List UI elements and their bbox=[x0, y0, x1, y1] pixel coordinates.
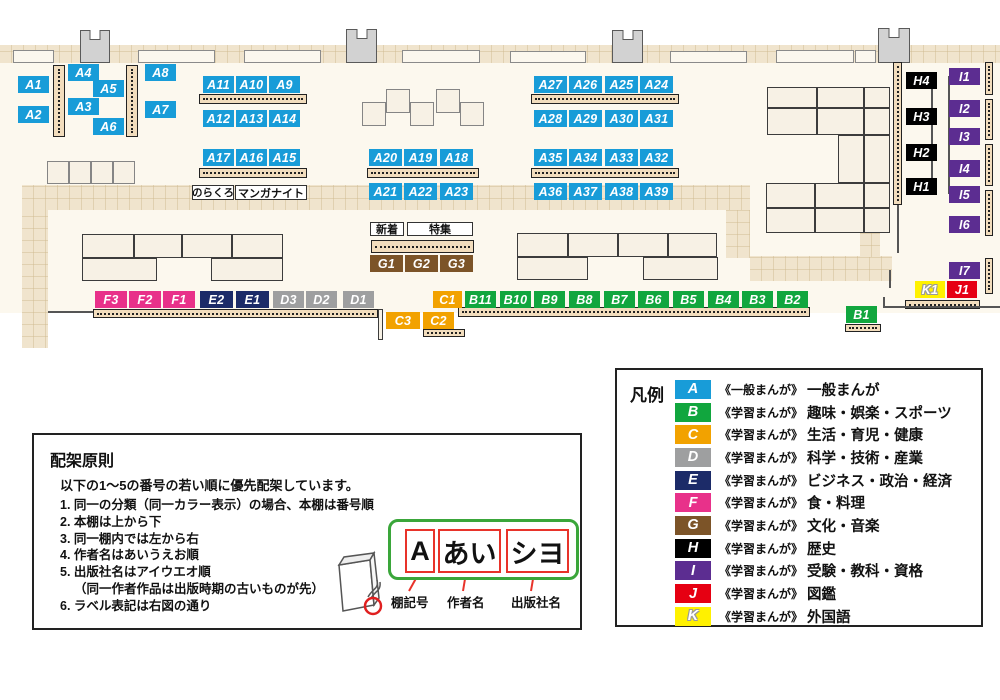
shelf-label-A32: A32 bbox=[640, 149, 673, 166]
shelf-label-A17: A17 bbox=[203, 149, 234, 166]
shelf-label-A7: A7 bbox=[145, 101, 176, 118]
shelf-label-I3: I3 bbox=[949, 128, 980, 145]
reading-table bbox=[211, 258, 283, 281]
legend-chip-I: I bbox=[675, 561, 711, 580]
shelf-label-H1: H1 bbox=[906, 178, 937, 195]
legend-row-A: A《一般まんが》一般まんが bbox=[675, 378, 952, 401]
walkway-area bbox=[860, 230, 880, 257]
bookshelf bbox=[371, 240, 474, 253]
legend-series: 《学習まんが》 bbox=[719, 426, 807, 443]
principles-item: （同一作者作品は出版時期の古いものが先） bbox=[60, 581, 374, 598]
bookshelf bbox=[985, 99, 993, 140]
legend-category: 図鑑 bbox=[807, 583, 836, 604]
wall-line bbox=[889, 270, 891, 288]
legend-row-K: K《学習まんが》外国語 bbox=[675, 605, 952, 628]
reading-table bbox=[232, 234, 283, 258]
shelf-label-K1: K1 bbox=[915, 281, 945, 298]
shelf-label-A22: A22 bbox=[404, 183, 437, 200]
pillar bbox=[878, 28, 910, 63]
legend-category: 歴史 bbox=[807, 538, 836, 559]
legend-category: 受験・教科・資格 bbox=[807, 560, 923, 581]
legend-chip-G: G bbox=[675, 516, 711, 535]
shelf-label-A25: A25 bbox=[605, 76, 638, 93]
bookshelf bbox=[423, 329, 465, 337]
shelf-label-B6: B6 bbox=[638, 291, 669, 308]
legend-chip-B: B bbox=[675, 403, 711, 422]
reading-table bbox=[134, 234, 182, 258]
legend-chip-K: K bbox=[675, 607, 711, 626]
shelf-label-A11: A11 bbox=[203, 76, 234, 93]
reading-table bbox=[766, 183, 815, 208]
walkway-area bbox=[22, 208, 48, 348]
legend-category: 食・料理 bbox=[807, 492, 865, 513]
principles-item: 5. 出版社名はアイウエオ順 bbox=[60, 564, 374, 581]
principles-intro: 以下の1～5の番号の若い順に優先配架しています。 bbox=[60, 475, 359, 494]
shelf-label-B1: B1 bbox=[846, 306, 877, 323]
floor-block bbox=[91, 161, 113, 184]
walkway-area bbox=[750, 256, 892, 281]
map-tag: 新着 bbox=[370, 222, 404, 236]
label-author: あい bbox=[443, 532, 497, 571]
legend-row-G: G《学習まんが》文化・音楽 bbox=[675, 514, 952, 537]
reading-table bbox=[864, 135, 890, 183]
author-caption: 作者名 bbox=[447, 592, 485, 611]
principles-item: 2. 本棚は上から下 bbox=[60, 514, 374, 531]
wall-window bbox=[855, 50, 876, 63]
reading-table bbox=[815, 183, 864, 208]
shelf-label-A38: A38 bbox=[605, 183, 638, 200]
bookshelf bbox=[893, 62, 902, 205]
shelf-label-A2: A2 bbox=[18, 106, 49, 123]
shelf-label-D1: D1 bbox=[343, 291, 374, 308]
pillar bbox=[80, 30, 110, 63]
map-tag: 特集 bbox=[407, 222, 473, 236]
legend-panel: 凡例 A《一般まんが》一般まんがB《学習まんが》趣味・娯楽・スポーツC《学習まん… bbox=[615, 368, 983, 627]
legend-row-C: C《学習まんが》生活・育児・健康 bbox=[675, 423, 952, 446]
shelf-label-A14: A14 bbox=[269, 110, 300, 127]
wall-window bbox=[244, 50, 321, 63]
wall-line bbox=[48, 311, 93, 313]
reading-table bbox=[817, 87, 864, 108]
shelf-label-H3: H3 bbox=[906, 108, 937, 125]
legend-series: 《学習まんが》 bbox=[719, 404, 807, 421]
shelf-label-F2: F2 bbox=[129, 291, 161, 308]
shelf-label-A29: A29 bbox=[569, 110, 602, 127]
legend-row-I: I《学習まんが》受験・教科・資格 bbox=[675, 560, 952, 583]
bookshelf bbox=[985, 62, 993, 95]
shelf-label-B7: B7 bbox=[604, 291, 635, 308]
legend-chip-H: H bbox=[675, 539, 711, 558]
principles-item: 6. ラベル表記は右図の通り bbox=[60, 598, 374, 615]
shelf-label-B8: B8 bbox=[569, 291, 600, 308]
legend-category: 科学・技術・産業 bbox=[807, 447, 923, 468]
wall-window bbox=[776, 50, 854, 63]
principles-title: 配架原則 bbox=[50, 447, 114, 471]
legend-series: 《学習まんが》 bbox=[719, 608, 807, 625]
shelf-label-A26: A26 bbox=[569, 76, 602, 93]
label-publisher-box: シヨ bbox=[506, 529, 569, 573]
shelving-principles-panel: 配架原則 以下の1～5の番号の若い順に優先配架しています。 1. 同一の分類（同… bbox=[32, 433, 582, 630]
floor-block bbox=[410, 102, 434, 126]
shelf-label-I2: I2 bbox=[949, 100, 980, 117]
label-shelf-code-box: A bbox=[405, 529, 435, 573]
legend-row-J: J《学習まんが》図鑑 bbox=[675, 582, 952, 605]
shelf-label-A12: A12 bbox=[203, 110, 234, 127]
bookshelf bbox=[985, 144, 993, 186]
reading-table bbox=[182, 234, 232, 258]
shelf-label-F3: F3 bbox=[95, 291, 127, 308]
shelf-label-B4: B4 bbox=[708, 291, 739, 308]
legend-series: 《一般まんが》 bbox=[719, 381, 807, 398]
map-tag: のらくろ bbox=[192, 185, 234, 200]
shelf-label-G1: G1 bbox=[370, 255, 403, 272]
reading-table bbox=[766, 208, 815, 233]
shelf-label-B3: B3 bbox=[742, 291, 773, 308]
reading-table bbox=[517, 257, 588, 280]
reading-table bbox=[815, 208, 864, 233]
shelf-label-A31: A31 bbox=[640, 110, 673, 127]
bookshelf bbox=[199, 94, 307, 104]
shelf-label-E2: E2 bbox=[200, 291, 233, 308]
shelf-label-E1: E1 bbox=[236, 291, 269, 308]
legend-series: 《学習まんが》 bbox=[719, 585, 807, 602]
label-author-box: あい bbox=[438, 529, 501, 573]
legend-category: 生活・育児・健康 bbox=[807, 424, 923, 445]
reading-table bbox=[568, 233, 618, 257]
shelf-label-A3: A3 bbox=[68, 98, 99, 115]
reading-table bbox=[817, 108, 864, 135]
legend-row-D: D《学習まんが》科学・技術・産業 bbox=[675, 446, 952, 469]
floor-block bbox=[362, 102, 386, 126]
shelf-label-A39: A39 bbox=[640, 183, 673, 200]
shelf-label-B2: B2 bbox=[777, 291, 808, 308]
wall-line bbox=[931, 80, 933, 186]
legend-chip-F: F bbox=[675, 493, 711, 512]
legend-category: 一般まんが bbox=[807, 379, 880, 400]
map-tag: マンガナイト bbox=[235, 185, 307, 200]
bookshelf bbox=[199, 168, 307, 178]
reading-table bbox=[82, 258, 157, 281]
shelf-label-A30: A30 bbox=[605, 110, 638, 127]
shelf-label-A23: A23 bbox=[440, 183, 473, 200]
principles-list: 1. 同一の分類（同一カラー表示）の場合、本棚は番号順2. 本棚は上から下3. … bbox=[60, 497, 374, 615]
bookshelf bbox=[531, 94, 679, 104]
reading-table bbox=[82, 234, 134, 258]
reading-table bbox=[864, 87, 890, 108]
legend-title: 凡例 bbox=[630, 381, 664, 406]
shelf-label-A15: A15 bbox=[269, 149, 300, 166]
floor-block bbox=[436, 89, 460, 113]
legend-chip-A: A bbox=[675, 380, 711, 399]
wall-line bbox=[897, 306, 1000, 308]
legend-row-B: B《学習まんが》趣味・娯楽・スポーツ bbox=[675, 401, 952, 424]
floor-block bbox=[386, 89, 410, 113]
shelf-label-D3: D3 bbox=[273, 291, 304, 308]
legend-category: 外国語 bbox=[807, 606, 851, 627]
legend-rows: A《一般まんが》一般まんがB《学習まんが》趣味・娯楽・スポーツC《学習まんが》生… bbox=[675, 378, 952, 628]
wall-line bbox=[897, 205, 899, 253]
shelf-label-A8: A8 bbox=[145, 64, 176, 81]
reading-table bbox=[618, 233, 668, 257]
reading-table bbox=[838, 135, 864, 183]
principles-item: 3. 同一棚内では左から右 bbox=[60, 531, 374, 548]
shelf-label-A4: A4 bbox=[68, 64, 99, 81]
bookshelf bbox=[985, 190, 993, 236]
legend-row-E: E《学習まんが》ビジネス・政治・経済 bbox=[675, 469, 952, 492]
shelf-label-H2: H2 bbox=[906, 144, 937, 161]
wall-line bbox=[883, 306, 897, 308]
shelf-label-J1: J1 bbox=[947, 281, 977, 298]
reading-table bbox=[767, 108, 817, 135]
shelf-label-I6: I6 bbox=[949, 216, 980, 233]
legend-series: 《学習まんが》 bbox=[719, 517, 807, 534]
shelf-label-A18: A18 bbox=[440, 149, 473, 166]
shelf-label-A1: A1 bbox=[18, 76, 49, 93]
shelf-label-A10: A10 bbox=[236, 76, 267, 93]
reading-table bbox=[668, 233, 717, 257]
label-publisher: シヨ bbox=[511, 532, 565, 571]
shelf-label-I4: I4 bbox=[949, 160, 980, 177]
shelf-label-A20: A20 bbox=[369, 149, 402, 166]
shelf-label-A36: A36 bbox=[534, 183, 567, 200]
shelf-label-A33: A33 bbox=[605, 149, 638, 166]
label-sticker-diagram: A あい シヨ bbox=[388, 519, 579, 580]
reading-table bbox=[767, 87, 817, 108]
shelf-label-I5: I5 bbox=[949, 186, 980, 203]
principles-item: 1. 同一の分類（同一カラー表示）の場合、本棚は番号順 bbox=[60, 497, 374, 514]
shelf-code-caption: 棚記号 bbox=[391, 592, 429, 611]
publisher-caption: 出版社名 bbox=[511, 592, 561, 611]
shelf-label-F1: F1 bbox=[163, 291, 195, 308]
shelf-label-A21: A21 bbox=[369, 183, 402, 200]
shelf-label-A27: A27 bbox=[534, 76, 567, 93]
legend-chip-J: J bbox=[675, 584, 711, 603]
legend-chip-C: C bbox=[675, 425, 711, 444]
legend-category: ビジネス・政治・経済 bbox=[807, 470, 952, 491]
shelf-label-I7: I7 bbox=[949, 262, 980, 279]
bookshelf bbox=[531, 168, 679, 178]
reading-table bbox=[643, 257, 718, 280]
shelf-label-G3: G3 bbox=[440, 255, 473, 272]
legend-row-F: F《学習まんが》食・料理 bbox=[675, 491, 952, 514]
shelf-label-C3: C3 bbox=[386, 312, 420, 329]
shelf-label-A5: A5 bbox=[93, 80, 124, 97]
bookshelf bbox=[845, 324, 881, 332]
bookshelf bbox=[53, 65, 65, 137]
legend-series: 《学習まんが》 bbox=[719, 472, 807, 489]
label-shelf-code: A bbox=[410, 536, 430, 567]
wall-window bbox=[510, 51, 586, 63]
shelf-label-A35: A35 bbox=[534, 149, 567, 166]
reading-table bbox=[864, 183, 890, 208]
floor-block bbox=[460, 102, 484, 126]
shelf-label-A28: A28 bbox=[534, 110, 567, 127]
floor-block bbox=[69, 161, 91, 184]
legend-chip-E: E bbox=[675, 471, 711, 490]
legend-row-H: H《学習まんが》歴史 bbox=[675, 537, 952, 560]
bookshelf bbox=[985, 258, 993, 294]
walkway-area bbox=[726, 210, 750, 258]
shelf-label-C2: C2 bbox=[423, 312, 454, 329]
wall-window bbox=[13, 50, 54, 63]
legend-series: 《学習まんが》 bbox=[719, 562, 807, 579]
wall-window bbox=[670, 51, 747, 63]
shelf-label-A16: A16 bbox=[236, 149, 267, 166]
shelf-label-H4: H4 bbox=[906, 72, 937, 89]
shelf-label-B10: B10 bbox=[500, 291, 531, 308]
shelf-label-G2: G2 bbox=[405, 255, 438, 272]
reading-table bbox=[378, 309, 383, 340]
wall-window bbox=[402, 50, 480, 63]
legend-series: 《学習まんが》 bbox=[719, 540, 807, 557]
reading-table bbox=[864, 108, 890, 135]
floor-block bbox=[113, 161, 135, 184]
shelf-label-A9: A9 bbox=[269, 76, 300, 93]
shelf-label-C1: C1 bbox=[433, 291, 462, 308]
bookshelf bbox=[93, 309, 378, 318]
shelf-label-A6: A6 bbox=[93, 118, 124, 135]
legend-category: 文化・音楽 bbox=[807, 515, 880, 536]
bookshelf bbox=[367, 168, 479, 178]
reading-table bbox=[864, 208, 890, 233]
shelf-label-A24: A24 bbox=[640, 76, 673, 93]
bookshelf bbox=[126, 65, 138, 137]
bookshelf bbox=[458, 307, 810, 317]
shelf-label-A37: A37 bbox=[569, 183, 602, 200]
shelf-label-B5: B5 bbox=[673, 291, 704, 308]
legend-chip-D: D bbox=[675, 448, 711, 467]
pillar bbox=[346, 29, 377, 63]
shelf-label-B9: B9 bbox=[534, 291, 565, 308]
shelf-label-A34: A34 bbox=[569, 149, 602, 166]
shelf-label-B11: B11 bbox=[465, 291, 496, 308]
legend-category: 趣味・娯楽・スポーツ bbox=[807, 402, 952, 423]
legend-series: 《学習まんが》 bbox=[719, 494, 807, 511]
shelf-label-I1: I1 bbox=[949, 68, 980, 85]
shelf-label-A13: A13 bbox=[236, 110, 267, 127]
wall-window bbox=[138, 50, 215, 63]
pillar bbox=[612, 30, 643, 63]
floor-map-page: A1A2A4A5A3A6A8A7A11A10A9A12A13A14A17A16A… bbox=[0, 0, 1000, 700]
legend-series: 《学習まんが》 bbox=[719, 449, 807, 466]
floor-block bbox=[47, 161, 69, 184]
principles-item: 4. 作者名はあいうえお順 bbox=[60, 547, 374, 564]
reading-table bbox=[517, 233, 568, 257]
shelf-label-A19: A19 bbox=[404, 149, 437, 166]
shelf-label-D2: D2 bbox=[306, 291, 337, 308]
